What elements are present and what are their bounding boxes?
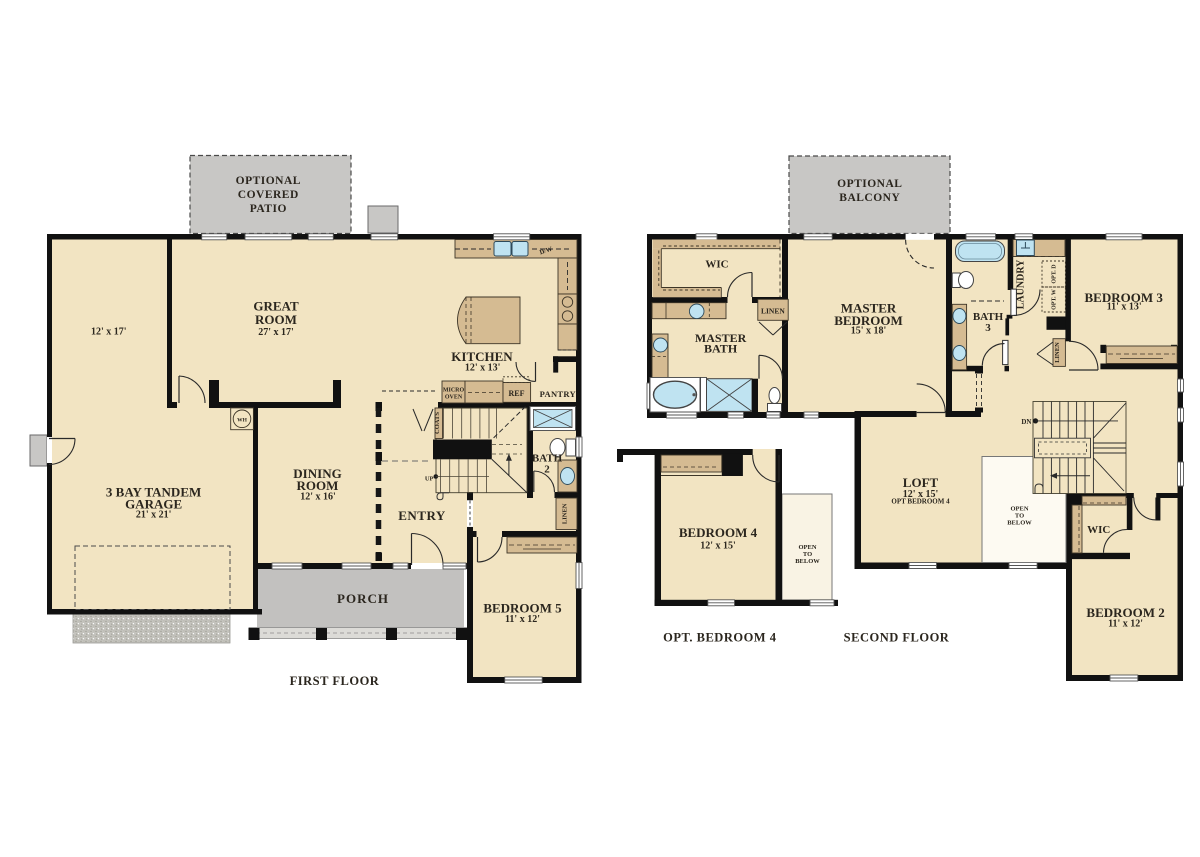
svg-text:LINEN: LINEN bbox=[562, 503, 569, 524]
svg-text:UP: UP bbox=[425, 476, 434, 483]
svg-text:TO: TO bbox=[803, 551, 812, 558]
svg-text:REF: REF bbox=[509, 389, 525, 398]
svg-text:COATS: COATS bbox=[434, 412, 441, 434]
svg-text:ROOM: ROOM bbox=[255, 312, 297, 327]
svg-text:OPT BEDROOM 4: OPT BEDROOM 4 bbox=[891, 498, 950, 506]
svg-text:12' x 16': 12' x 16' bbox=[300, 492, 336, 503]
svg-text:11' x 12': 11' x 12' bbox=[505, 614, 540, 625]
svg-text:PORCH: PORCH bbox=[337, 591, 389, 606]
svg-text:11' x 12': 11' x 12' bbox=[1108, 619, 1143, 630]
svg-text:FIRST FLOOR: FIRST FLOOR bbox=[290, 674, 380, 688]
svg-text:BELOW: BELOW bbox=[1007, 520, 1032, 527]
svg-text:COVERED: COVERED bbox=[238, 189, 299, 201]
svg-text:11' x 13': 11' x 13' bbox=[1107, 302, 1142, 313]
svg-text:LINEN: LINEN bbox=[761, 307, 785, 316]
svg-text:BEDROOM 4: BEDROOM 4 bbox=[679, 525, 758, 540]
svg-text:DN: DN bbox=[1021, 418, 1031, 426]
svg-text:SECOND FLOOR: SECOND FLOOR bbox=[844, 631, 950, 645]
svg-text:BELOW: BELOW bbox=[795, 558, 820, 565]
svg-text:WIC: WIC bbox=[1087, 524, 1110, 536]
svg-text:OPTIONAL: OPTIONAL bbox=[837, 178, 902, 190]
svg-text:TO: TO bbox=[1015, 513, 1024, 520]
svg-text:LAUNDRY: LAUNDRY bbox=[1016, 259, 1027, 309]
svg-text:2: 2 bbox=[544, 464, 550, 476]
svg-text:3: 3 bbox=[985, 322, 991, 334]
svg-text:LOFT: LOFT bbox=[903, 475, 939, 490]
svg-text:LINEN: LINEN bbox=[1054, 342, 1061, 363]
svg-text:PATIO: PATIO bbox=[250, 203, 287, 215]
svg-text:12' x 15': 12' x 15' bbox=[700, 541, 736, 552]
svg-text:OPT. W: OPT. W bbox=[1052, 289, 1058, 310]
svg-text:MICRO: MICRO bbox=[443, 388, 465, 394]
svg-text:ENTRY: ENTRY bbox=[398, 508, 446, 523]
svg-text:OPTIONAL: OPTIONAL bbox=[236, 175, 301, 187]
svg-text:BALCONY: BALCONY bbox=[839, 192, 900, 204]
svg-text:WIC: WIC bbox=[705, 259, 728, 271]
svg-text:27' x 17': 27' x 17' bbox=[258, 327, 294, 338]
svg-text:WH: WH bbox=[237, 417, 248, 423]
svg-text:OPT. D: OPT. D bbox=[1052, 264, 1058, 284]
svg-text:OPEN: OPEN bbox=[1010, 506, 1028, 513]
svg-text:12' x 17': 12' x 17' bbox=[91, 327, 127, 338]
svg-text:BATH: BATH bbox=[704, 342, 738, 356]
svg-text:OPEN: OPEN bbox=[798, 544, 816, 551]
svg-text:12' x 13': 12' x 13' bbox=[465, 363, 501, 374]
svg-text:PANTRY: PANTRY bbox=[540, 389, 576, 399]
svg-text:15' x 18': 15' x 18' bbox=[851, 326, 887, 337]
svg-text:21' x 21': 21' x 21' bbox=[136, 510, 172, 521]
svg-text:OPT. BEDROOM 4: OPT. BEDROOM 4 bbox=[663, 631, 777, 645]
svg-text:OVEN: OVEN bbox=[445, 395, 463, 401]
